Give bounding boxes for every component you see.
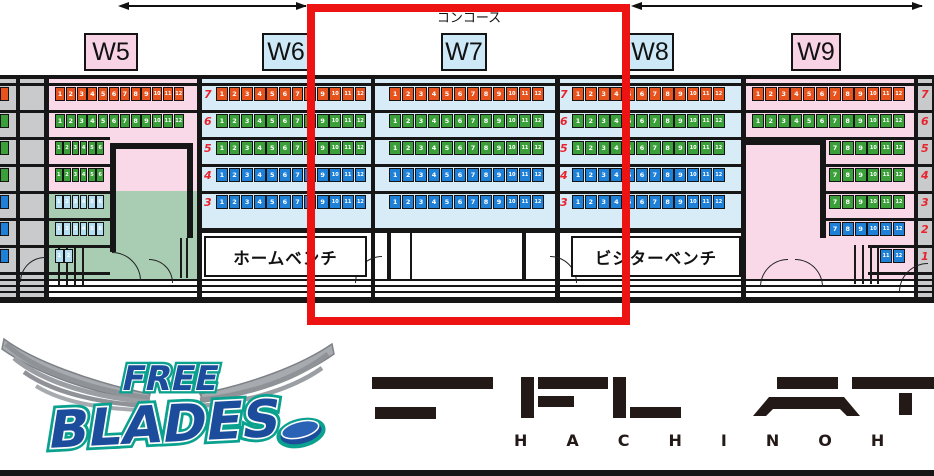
wall-line xyxy=(0,110,16,113)
seat[interactable]: 9 xyxy=(854,114,866,128)
seat[interactable]: 10 xyxy=(687,114,699,128)
seat[interactable]: 11 xyxy=(163,87,173,101)
seat-row: 789101112 xyxy=(829,141,905,155)
seat-row xyxy=(0,222,9,236)
dimension-line-right xyxy=(634,5,922,7)
wall-line xyxy=(110,143,193,149)
seat[interactable]: 6 xyxy=(636,87,648,101)
flat-logo-word: HACHINOH xyxy=(514,431,923,450)
seat[interactable]: 5 xyxy=(98,87,108,101)
seat[interactable]: 8 xyxy=(662,195,674,209)
row-number-label: 7 xyxy=(204,88,212,101)
seat[interactable]: 6 xyxy=(279,114,291,128)
seat[interactable]: 6 xyxy=(96,222,104,236)
seat-row: 123456789101112 xyxy=(752,87,905,101)
seat[interactable]: 11 xyxy=(880,87,892,101)
seat-row xyxy=(0,195,9,209)
seat[interactable]: 1 xyxy=(55,141,63,155)
seat[interactable]: 2 xyxy=(66,114,76,128)
wall-line xyxy=(48,164,110,167)
seat[interactable]: 9 xyxy=(141,87,151,101)
seat[interactable]: 9 xyxy=(855,168,867,182)
wall-line xyxy=(918,164,934,167)
seat[interactable]: 11 xyxy=(700,141,712,155)
seat[interactable]: 2 xyxy=(765,114,777,128)
seat[interactable] xyxy=(0,249,9,263)
wall-line xyxy=(48,110,197,113)
seat-row: 123456789101112 xyxy=(55,114,184,128)
door-arc xyxy=(112,252,141,281)
stairs-hatch xyxy=(180,238,182,278)
seat[interactable]: 6 xyxy=(636,168,648,182)
seat[interactable]: 8 xyxy=(842,168,854,182)
seat[interactable]: 4 xyxy=(80,222,88,236)
seat[interactable]: 5 xyxy=(88,222,96,236)
seat-row: 123456789101112 xyxy=(55,87,184,101)
row-number-label: 5 xyxy=(921,142,929,155)
wall-line xyxy=(18,218,45,221)
wall-line xyxy=(918,218,934,221)
row-number-label: 3 xyxy=(921,196,929,209)
seat[interactable]: 5 xyxy=(266,87,278,101)
seat[interactable]: 10 xyxy=(867,222,879,236)
wall-line xyxy=(0,83,16,86)
seat[interactable]: 2 xyxy=(63,222,71,236)
seat[interactable]: 12 xyxy=(893,222,905,236)
seat[interactable]: 11 xyxy=(700,114,712,128)
section-label-w9: W9 xyxy=(791,33,841,71)
seat[interactable]: 6 xyxy=(279,195,291,209)
door-arc xyxy=(149,259,173,283)
seat[interactable]: 12 xyxy=(893,114,905,128)
seat[interactable]: 6 xyxy=(279,87,291,101)
seat[interactable]: 7 xyxy=(649,195,661,209)
seat[interactable]: 2 xyxy=(229,114,241,128)
wall-line xyxy=(918,245,934,248)
seat[interactable]: 1 xyxy=(216,168,228,182)
door-arc xyxy=(760,259,788,287)
seat[interactable]: 6 xyxy=(109,114,119,128)
wall-line xyxy=(48,137,110,140)
seat[interactable]: 11 xyxy=(880,141,892,155)
seat[interactable]: 7 xyxy=(120,87,130,101)
seat[interactable]: 12 xyxy=(713,141,725,155)
seat[interactable]: 10 xyxy=(687,141,699,155)
seat[interactable]: 8 xyxy=(842,87,854,101)
seat[interactable]: 2 xyxy=(63,195,71,209)
seat[interactable]: 10 xyxy=(152,87,162,101)
stairs-hatch xyxy=(82,248,84,287)
wall-line xyxy=(18,83,45,86)
seat[interactable] xyxy=(0,222,9,236)
seat-row: 123456 xyxy=(55,141,104,155)
seat[interactable]: 3 xyxy=(72,141,80,155)
row-number-label: 1 xyxy=(921,250,929,263)
flat-logo-glyph xyxy=(538,396,574,407)
stairs-hatch xyxy=(854,245,856,284)
seat[interactable]: 10 xyxy=(867,141,879,155)
seat[interactable]: 12 xyxy=(893,195,905,209)
seat[interactable] xyxy=(0,114,9,128)
seat[interactable]: 9 xyxy=(141,114,151,128)
seat[interactable]: 4 xyxy=(254,168,266,182)
seat[interactable]: 4 xyxy=(254,87,266,101)
seat[interactable]: 7 xyxy=(829,141,841,155)
seat[interactable]: 7 xyxy=(649,114,661,128)
seat[interactable]: 7 xyxy=(292,168,304,182)
arrowhead-icon xyxy=(118,2,129,10)
seat[interactable]: 8 xyxy=(131,87,141,101)
wall-line xyxy=(918,83,934,86)
section-label-w6: W6 xyxy=(262,33,310,71)
flat-logo-glyph-a-arch xyxy=(753,397,860,416)
seat[interactable]: 1 xyxy=(216,141,228,155)
wall-line xyxy=(868,245,915,248)
seat-row: 789101112 xyxy=(829,168,905,182)
seat[interactable]: 7 xyxy=(292,87,304,101)
stairs-hatch xyxy=(186,238,188,278)
flat-logo-glyph xyxy=(630,407,681,418)
seat[interactable]: 11 xyxy=(880,114,892,128)
wall-line xyxy=(110,143,116,252)
seat[interactable]: 9 xyxy=(674,114,686,128)
row-number-label: 4 xyxy=(921,169,929,182)
seat[interactable]: 5 xyxy=(88,195,96,209)
seat[interactable]: 10 xyxy=(687,168,699,182)
flat-logo-glyph xyxy=(613,377,626,418)
seat[interactable]: 9 xyxy=(674,168,686,182)
seat[interactable]: 7 xyxy=(649,87,661,101)
seat[interactable]: 7 xyxy=(829,222,841,236)
seat[interactable]: 9 xyxy=(674,195,686,209)
seat[interactable]: 8 xyxy=(662,114,674,128)
seat[interactable]: 3 xyxy=(778,114,790,128)
seat[interactable]: 1 xyxy=(55,222,63,236)
wall-line xyxy=(745,137,915,140)
flat-logo-glyph xyxy=(375,407,436,419)
dimension-line-left xyxy=(122,5,306,7)
seat[interactable]: 11 xyxy=(700,195,712,209)
freeblades-logo: FREE FREE BLADES BLADES xyxy=(0,336,340,476)
seat[interactable]: 11 xyxy=(163,114,173,128)
seat[interactable]: 4 xyxy=(790,114,802,128)
seat[interactable]: 5 xyxy=(266,141,278,155)
seat[interactable]: 4 xyxy=(254,141,266,155)
door-arc xyxy=(795,259,823,287)
wall-line xyxy=(48,218,110,221)
seat-row xyxy=(0,114,9,128)
seat[interactable]: 10 xyxy=(867,168,879,182)
seat[interactable]: 7 xyxy=(649,141,661,155)
wall-line xyxy=(0,245,16,248)
seat-row xyxy=(0,168,9,182)
seat[interactable]: 7 xyxy=(829,168,841,182)
seat[interactable]: 6 xyxy=(816,114,828,128)
wall-line xyxy=(745,83,915,86)
flat-logo-glyph xyxy=(777,377,838,389)
seat[interactable]: 9 xyxy=(855,195,867,209)
seat[interactable]: 1 xyxy=(752,87,764,101)
seat[interactable]: 5 xyxy=(88,168,96,182)
wall-line xyxy=(826,218,915,221)
seat[interactable]: 3 xyxy=(72,222,80,236)
seat[interactable]: 3 xyxy=(72,168,80,182)
seat[interactable]: 6 xyxy=(636,114,648,128)
seat[interactable]: 12 xyxy=(893,141,905,155)
seat[interactable]: 6 xyxy=(96,168,104,182)
seat[interactable]: 3 xyxy=(241,195,253,209)
door-arc xyxy=(899,263,928,292)
seat[interactable]: 12 xyxy=(174,114,184,128)
seat-row: 1112 xyxy=(880,249,905,263)
seat[interactable]: 12 xyxy=(713,114,725,128)
seat[interactable]: 3 xyxy=(241,141,253,155)
seat[interactable]: 1 xyxy=(55,114,65,128)
wall-line xyxy=(918,110,934,113)
seat[interactable]: 2 xyxy=(63,141,71,155)
seat[interactable]: 2 xyxy=(765,87,777,101)
seat[interactable]: 5 xyxy=(803,114,815,128)
seat[interactable]: 5 xyxy=(266,114,278,128)
seat[interactable]: 4 xyxy=(80,195,88,209)
seat[interactable]: 12 xyxy=(713,87,725,101)
arrowhead-icon xyxy=(912,2,923,10)
freeblades-word-blades-top: BLADES xyxy=(44,389,285,461)
arrowhead-icon xyxy=(296,2,307,10)
seat[interactable]: 7 xyxy=(829,87,841,101)
seat[interactable]: 12 xyxy=(713,168,725,182)
row-number-label: 6 xyxy=(921,115,929,128)
row-number-label: 5 xyxy=(204,142,212,155)
seat[interactable]: 10 xyxy=(687,195,699,209)
wall-line xyxy=(826,191,915,194)
wall-line xyxy=(820,139,826,238)
seat-row: 123456 xyxy=(55,195,104,209)
seat[interactable]: 6 xyxy=(279,168,291,182)
seat[interactable]: 4 xyxy=(254,114,266,128)
seat[interactable]: 5 xyxy=(803,87,815,101)
wall-line xyxy=(918,137,934,140)
seat[interactable]: 5 xyxy=(266,168,278,182)
wall-line xyxy=(0,164,16,167)
seat[interactable]: 2 xyxy=(229,168,241,182)
seat[interactable]: 11 xyxy=(880,222,892,236)
seat[interactable]: 6 xyxy=(96,141,104,155)
wall-line xyxy=(48,83,197,86)
seat[interactable]: 8 xyxy=(131,114,141,128)
seat[interactable]: 12 xyxy=(174,87,184,101)
seat[interactable]: 1 xyxy=(216,195,228,209)
seat[interactable]: 7 xyxy=(292,114,304,128)
wall-line xyxy=(187,143,193,238)
wall-line xyxy=(18,191,45,194)
seat[interactable]: 10 xyxy=(152,114,162,128)
seat[interactable]: 3 xyxy=(778,87,790,101)
page-bottom-border xyxy=(0,470,934,476)
seat[interactable]: 7 xyxy=(292,141,304,155)
seat[interactable]: 1 xyxy=(55,87,65,101)
hockey-puck-icon xyxy=(276,415,327,450)
seat[interactable]: 8 xyxy=(842,114,854,128)
seat[interactable]: 10 xyxy=(867,87,879,101)
seat-row: 12 xyxy=(55,249,73,263)
seat[interactable]: 10 xyxy=(687,87,699,101)
seat[interactable]: 1 xyxy=(216,87,228,101)
seat[interactable]: 4 xyxy=(80,141,88,155)
wall-line xyxy=(18,110,45,113)
seat[interactable]: 1 xyxy=(752,114,764,128)
seat-row xyxy=(0,87,9,101)
seat-row: 123456 xyxy=(55,222,104,236)
seatmap-page: コンコース W512345678910111212345678910111212… xyxy=(0,0,934,476)
wall-line xyxy=(18,245,45,248)
seat[interactable]: 3 xyxy=(241,114,253,128)
seat[interactable]: 8 xyxy=(842,222,854,236)
seat[interactable]: 7 xyxy=(649,168,661,182)
seat[interactable]: 12 xyxy=(893,87,905,101)
seat[interactable]: 6 xyxy=(636,195,648,209)
seat[interactable]: 8 xyxy=(662,141,674,155)
seat-row: 789101112 xyxy=(829,195,905,209)
seat[interactable]: 7 xyxy=(829,195,841,209)
seat[interactable]: 12 xyxy=(893,249,905,263)
seat[interactable]: 3 xyxy=(72,195,80,209)
wall-line xyxy=(48,191,110,194)
seat[interactable]: 12 xyxy=(713,195,725,209)
wall-line xyxy=(0,191,16,194)
wall-line xyxy=(0,137,16,140)
section-label-w8: W8 xyxy=(626,33,674,71)
row-number-label: 4 xyxy=(204,169,212,182)
seat[interactable]: 2 xyxy=(64,249,73,263)
seat[interactable]: 10 xyxy=(867,114,879,128)
wall-line xyxy=(0,272,16,275)
seat-row: 123456 xyxy=(55,168,104,182)
seat-row xyxy=(0,141,9,155)
seat[interactable]: 8 xyxy=(842,141,854,155)
seat[interactable]: 3 xyxy=(77,87,87,101)
seat-row xyxy=(0,249,9,263)
w7-highlight-box xyxy=(307,4,630,325)
seat[interactable]: 5 xyxy=(88,141,96,155)
seat[interactable]: 8 xyxy=(662,87,674,101)
seat[interactable] xyxy=(0,87,9,101)
wall-line xyxy=(826,164,915,167)
seat[interactable]: 3 xyxy=(241,87,253,101)
seat[interactable]: 2 xyxy=(229,141,241,155)
seat[interactable]: 2 xyxy=(63,168,71,182)
wall-line xyxy=(18,137,45,140)
seat[interactable]: 9 xyxy=(855,222,867,236)
seat[interactable]: 2 xyxy=(229,87,241,101)
seat[interactable]: 9 xyxy=(854,87,866,101)
seat[interactable]: 7 xyxy=(120,114,130,128)
seat[interactable]: 5 xyxy=(266,195,278,209)
seat[interactable]: 4 xyxy=(254,195,266,209)
seat[interactable]: 7 xyxy=(829,114,841,128)
seat[interactable]: 6 xyxy=(109,87,119,101)
seat[interactable] xyxy=(0,168,9,182)
seat[interactable]: 5 xyxy=(98,114,108,128)
seat[interactable] xyxy=(0,141,9,155)
wall-line xyxy=(0,218,16,221)
seat[interactable]: 3 xyxy=(77,114,87,128)
seat[interactable]: 3 xyxy=(241,168,253,182)
flat-logo-glyph xyxy=(521,377,534,418)
seat[interactable]: 6 xyxy=(96,195,104,209)
seat[interactable]: 1 xyxy=(216,114,228,128)
flat-logo-glyph xyxy=(372,377,493,389)
wall-line xyxy=(745,110,915,113)
seat[interactable]: 6 xyxy=(636,141,648,155)
seat[interactable]: 7 xyxy=(292,195,304,209)
seat[interactable]: 12 xyxy=(893,168,905,182)
seat[interactable]: 11 xyxy=(880,168,892,182)
seat[interactable] xyxy=(0,195,9,209)
row-number-label: 2 xyxy=(921,223,929,236)
seat[interactable]: 4 xyxy=(790,87,802,101)
seat[interactable]: 11 xyxy=(700,87,712,101)
seat[interactable]: 9 xyxy=(674,87,686,101)
flat-logo-glyph xyxy=(852,377,934,389)
seat[interactable]: 1 xyxy=(55,249,64,263)
door-arc xyxy=(20,257,45,282)
seat[interactable]: 8 xyxy=(842,195,854,209)
seat[interactable]: 11 xyxy=(700,168,712,182)
seat[interactable]: 10 xyxy=(867,195,879,209)
stairs-hatch xyxy=(862,245,864,284)
seat[interactable]: 2 xyxy=(229,195,241,209)
row-number-label: 7 xyxy=(921,88,929,101)
row-number-label: 6 xyxy=(204,115,212,128)
arrowhead-icon xyxy=(631,2,642,10)
flat-logo-glyph xyxy=(538,377,608,389)
stairs-hatch xyxy=(877,245,879,284)
seat[interactable]: 1 xyxy=(55,168,63,182)
seat[interactable]: 4 xyxy=(80,168,88,182)
row-number-label: 3 xyxy=(204,196,212,209)
seat[interactable]: 6 xyxy=(279,141,291,155)
seat-row: 789101112 xyxy=(829,222,905,236)
seat[interactable]: 9 xyxy=(855,141,867,155)
stairs-hatch xyxy=(74,248,76,287)
seat[interactable]: 8 xyxy=(662,168,674,182)
seat[interactable]: 4 xyxy=(87,114,97,128)
seat[interactable]: 1 xyxy=(55,195,63,209)
seat[interactable]: 11 xyxy=(880,195,892,209)
wall-line xyxy=(18,164,45,167)
seat[interactable]: 4 xyxy=(87,87,97,101)
wall-line xyxy=(918,191,934,194)
flat-logo-glyph xyxy=(899,393,912,415)
stairs-hatch xyxy=(870,245,872,284)
section-label-w5: W5 xyxy=(84,33,138,71)
seat[interactable]: 11 xyxy=(880,249,892,263)
seat[interactable]: 6 xyxy=(816,87,828,101)
seat[interactable]: 2 xyxy=(66,87,76,101)
seat-row: 123456789101112 xyxy=(752,114,905,128)
seat[interactable]: 9 xyxy=(674,141,686,155)
